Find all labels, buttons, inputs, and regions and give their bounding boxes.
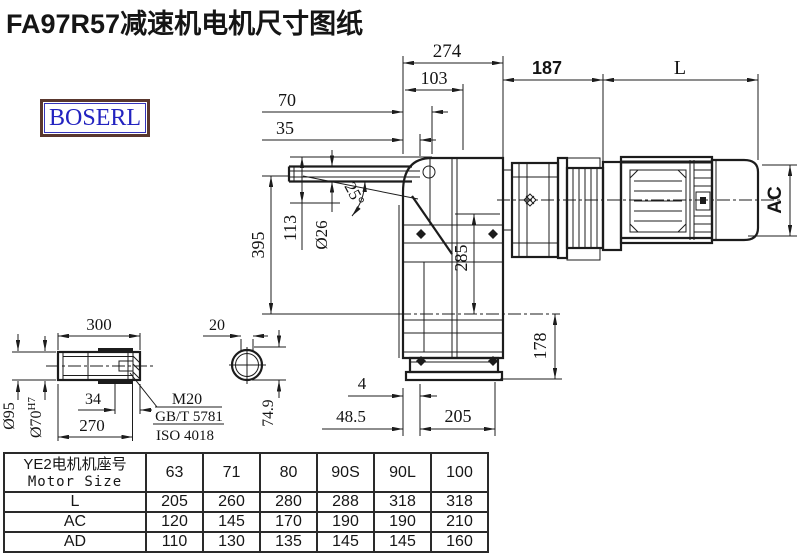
dim-26-label: Ø26 [312,220,331,249]
dim-20-label: 20 [209,317,225,334]
dim-274-label: 274 [433,41,462,62]
dim-187-label: 187 [532,58,562,78]
col-90S: 90S [317,453,374,492]
dim-178-label: 178 [530,333,550,360]
dim-70-label: 70 [278,90,296,110]
col-80: 80 [260,453,317,492]
col-71: 71 [203,453,260,492]
motor-view [497,157,780,260]
row-label-L: L [4,492,146,512]
dim-285-label: 285 [451,245,471,272]
dim-L-label: L [674,57,686,79]
dim-95-label: Ø95 [1,402,18,430]
shaft-detail: 300 Ø95 Ø70H7 34 270 M20 GB/T 5 [1,315,224,444]
thread-m20-label: M20 [172,391,202,408]
dim-4-label: 4 [358,374,367,393]
col-90L: 90L [374,453,431,492]
dim-103-label: 103 [421,68,448,88]
dimensions-top: 274 103 70 35 187 L [262,41,758,192]
dim-74_9-label: 74.9 [260,399,277,426]
col-63: 63 [146,453,203,492]
dim-70H7-label: Ø70H7 [26,396,45,438]
dimensions-left: 395 113 Ø26 285 178 AC [248,150,797,379]
table-row: AC 120 145 170 190 190 210 [4,512,488,532]
dim-113-label: 113 [280,215,300,241]
dim-270-label: 270 [79,416,105,435]
row-label-AD: AD [4,532,146,552]
dim-25deg-label: 25° [340,179,368,209]
drawing-sheet: FA97R57减速机电机尺寸图纸 BOSERL [0,0,800,555]
table-row: L 205 260 280 288 318 318 [4,492,488,512]
standard-gbt-label: GB/T 5781 [155,409,223,425]
table-row: AD 110 130 135 145 145 160 [4,532,488,552]
dim-35-label: 35 [276,118,294,138]
standard-iso-label: ISO 4018 [156,428,214,444]
table-header-motor-size: YE2电机机座号 Motor Size [4,453,146,492]
dim-48_5-label: 48.5 [336,407,366,426]
col-100: 100 [431,453,488,492]
dim-AC-label: AC [765,186,786,214]
spec-table: YE2电机机座号 Motor Size 63 71 80 90S 90L 100… [3,452,489,553]
dimensions-bottom: 4 48.5 205 [322,374,495,436]
dim-205-label: 205 [445,406,472,426]
dim-395-label: 395 [248,232,268,259]
dim-300-label: 300 [86,315,112,334]
dim-34-label: 34 [85,391,101,408]
row-label-AC: AC [4,512,146,532]
